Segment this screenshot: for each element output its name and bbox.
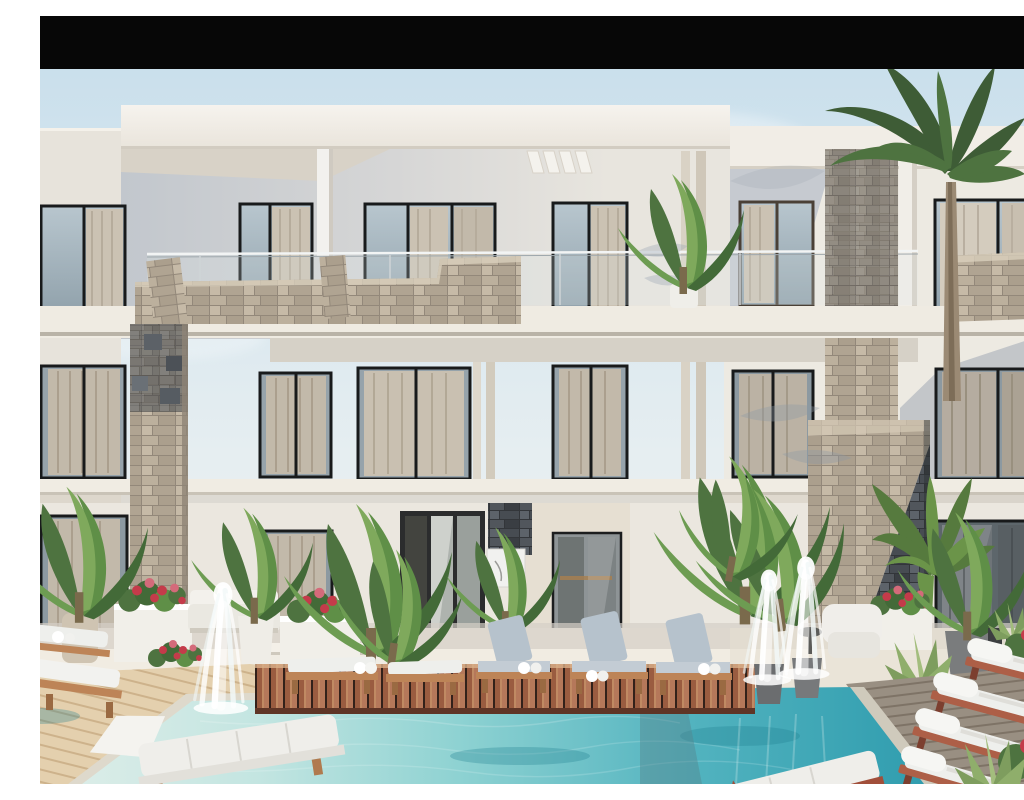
window: [553, 366, 627, 479]
architectural-rendering: 3D architectural rendering of a modern w…: [40, 16, 1024, 784]
window: [358, 368, 470, 479]
top-letterbox-bar: [40, 16, 1024, 69]
roof-fascia: [121, 105, 730, 149]
window: [41, 206, 125, 318]
window: [260, 373, 331, 477]
window: [41, 366, 125, 478]
